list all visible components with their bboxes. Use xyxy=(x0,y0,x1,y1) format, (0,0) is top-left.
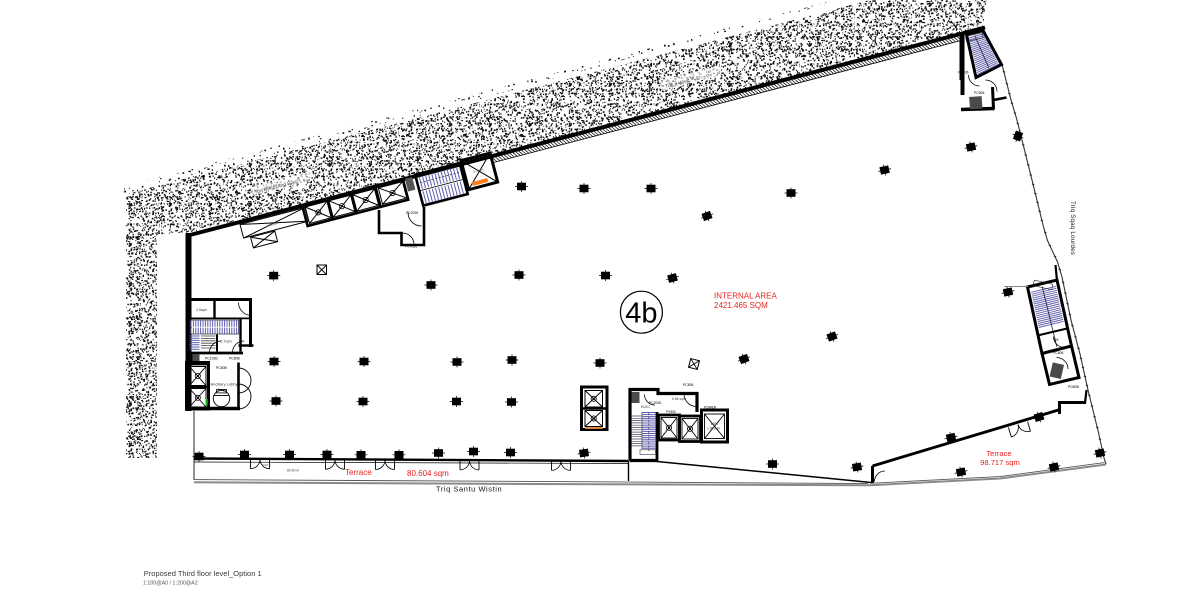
svg-text:PC80B: PC80B xyxy=(216,366,227,370)
svg-text:PV806: PV806 xyxy=(666,410,676,414)
svg-text:Proposed Third floor level_Opt: Proposed Third floor level_Option 1 xyxy=(144,569,262,578)
svg-text:PC4026: PC4026 xyxy=(405,245,417,249)
svg-text:Ancillary Lobby: Ancillary Lobby xyxy=(211,382,238,387)
svg-text:Terrace: Terrace xyxy=(345,468,372,477)
svg-text:ELEC: ELEC xyxy=(641,405,650,409)
svg-text:2421.465 SQM: 2421.465 SQM xyxy=(714,301,768,310)
svg-text:PC80B: PC80B xyxy=(229,357,240,361)
svg-text:5.90 m: 5.90 m xyxy=(262,463,272,467)
svg-text:6.7sqm: 6.7sqm xyxy=(221,340,232,344)
svg-text:1.86sqm: 1.86sqm xyxy=(266,221,279,228)
svg-text:80.604 sqm: 80.604 sqm xyxy=(407,469,449,478)
svg-text:80.60 m: 80.60 m xyxy=(287,469,299,473)
svg-text:R6: R6 xyxy=(1054,338,1058,342)
svg-text:PC806: PC806 xyxy=(974,91,984,95)
svg-text:Triq Sqaq Lourdes: Triq Sqaq Lourdes xyxy=(1069,201,1076,255)
svg-text:PC806: PC806 xyxy=(683,383,693,387)
svg-text:PC2026: PC2026 xyxy=(406,211,418,215)
svg-text:98.717 sqm: 98.717 sqm xyxy=(980,458,1020,467)
svg-text:Terrace: Terrace xyxy=(986,449,1011,458)
svg-text:Triq Santu Wistin: Triq Santu Wistin xyxy=(436,485,502,494)
svg-text:PC2026: PC2026 xyxy=(649,401,661,405)
svg-text:PC806: PC806 xyxy=(1053,351,1063,355)
svg-text:4b: 4b xyxy=(625,298,657,330)
svg-text:PC102B: PC102B xyxy=(205,357,218,361)
svg-text:INTERNAL AREA: INTERNAL AREA xyxy=(714,292,777,301)
svg-text:LIFT: LIFT xyxy=(711,422,719,426)
svg-text:1:100@A0 / 1:200@A2: 1:100@A0 / 1:200@A2 xyxy=(143,581,198,587)
svg-text:6.86 sqm: 6.86 sqm xyxy=(672,397,686,401)
svg-text:PC806: PC806 xyxy=(958,71,968,75)
svg-text:POWER: POWER xyxy=(704,406,717,410)
svg-text:PO80B: PO80B xyxy=(1068,385,1080,389)
svg-text:1.96 sqm: 1.96 sqm xyxy=(707,427,720,431)
svg-text:4.5sqm: 4.5sqm xyxy=(196,308,207,312)
